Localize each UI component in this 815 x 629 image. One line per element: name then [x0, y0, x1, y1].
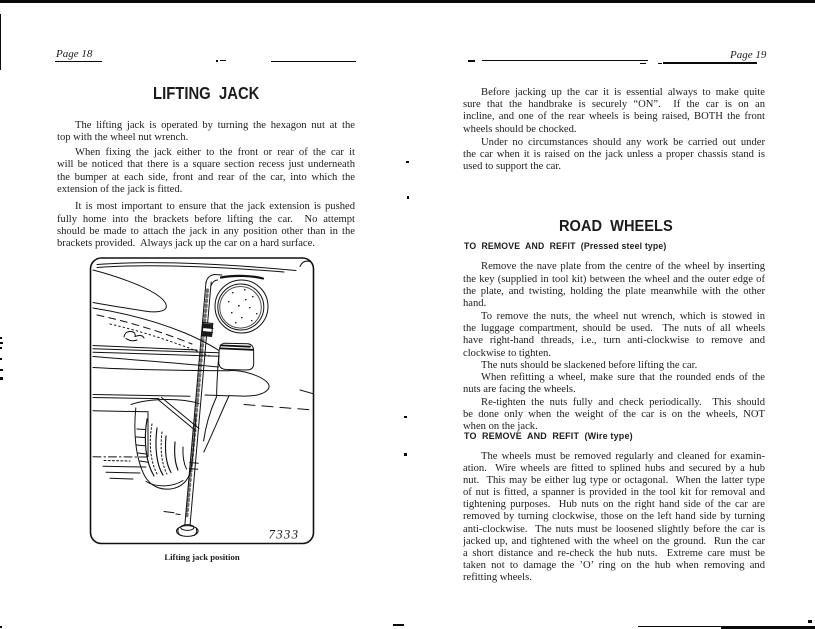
- svg-text:7333: 7333: [269, 528, 300, 542]
